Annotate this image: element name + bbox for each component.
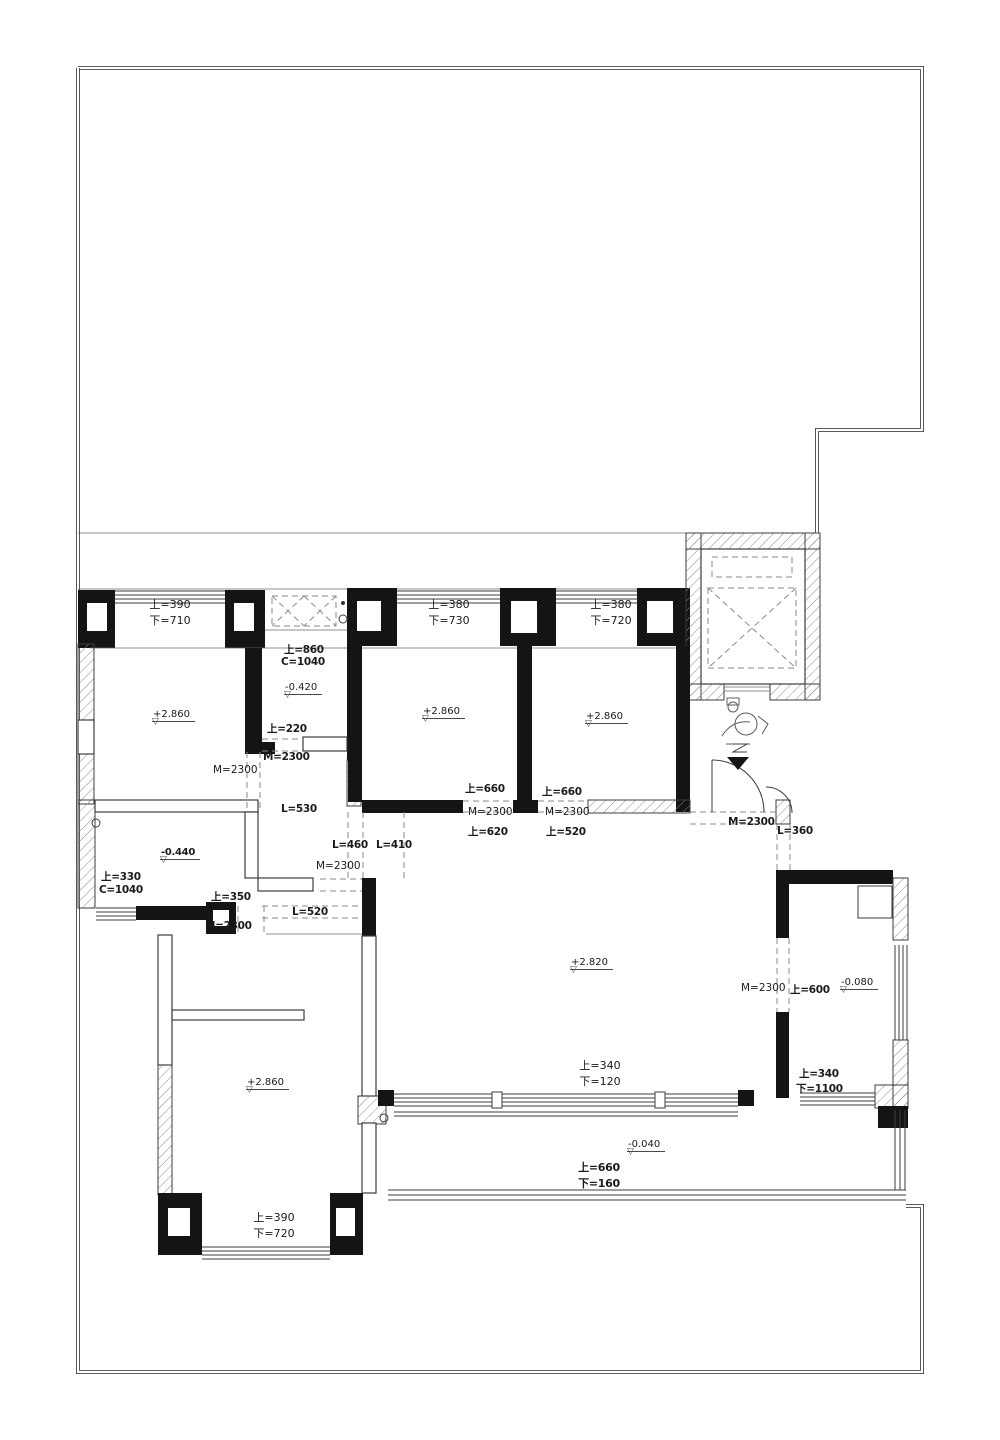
terrace-boundary xyxy=(78,68,922,1372)
plan-drawing xyxy=(0,0,1000,1440)
window-label-top-right: 上=380 下=720 xyxy=(569,597,653,629)
dim-bath1-u220: 上=220 xyxy=(267,721,307,736)
window-label-top-mid: 上=380 下=730 xyxy=(407,597,491,629)
dim-hall-l520: L=520 xyxy=(292,906,328,918)
dim-entry-l360: L=360 xyxy=(777,825,813,837)
level-marker-bed2: +2.860 xyxy=(422,706,465,719)
dim-bath2-sill: 上=330 xyxy=(101,869,141,884)
dim-bath2-window: C=1040 xyxy=(99,884,143,896)
level-marker-bath1: -0.420 xyxy=(284,682,322,695)
dim-kitchen-u340: 上=340 xyxy=(799,1066,839,1081)
dim-kitchen-d1100: 下=1100 xyxy=(796,1081,843,1096)
balcony-rail-label: 上=660 下=160 xyxy=(557,1160,641,1192)
dim-bed3-upper: 上=660 xyxy=(542,784,582,799)
flue-shaft xyxy=(265,596,347,630)
dim-bed2-door: M=2300 xyxy=(468,806,513,818)
level-marker-living: +2.820 xyxy=(570,957,613,970)
dim-bed3-door: M=2300 xyxy=(545,806,590,818)
level-marker-bed3: +2.860 xyxy=(585,711,628,724)
elevator-shaft xyxy=(686,533,820,700)
dim-entry-door: M=2300 xyxy=(728,816,775,828)
level-marker-bed4: +2.860 xyxy=(246,1077,289,1090)
walls xyxy=(78,644,908,1255)
dim-kitchen-u600: 上=600 xyxy=(790,982,830,997)
dim-hall-l530: L=530 xyxy=(281,803,317,815)
level-marker-bath2: -0.440 xyxy=(160,847,200,860)
entrance-arrow-icon xyxy=(727,744,749,770)
dim-bath2-u350: 上=350 xyxy=(211,889,251,904)
dim-bath1-sill: 上=860 xyxy=(284,642,324,657)
dim-bed1-door: M=2300 xyxy=(213,764,258,776)
dim-bed2-lower: 上=620 xyxy=(468,824,508,839)
dim-bath1-window: C=1040 xyxy=(281,656,325,668)
floor-plan: 上=390 下=710 上=380 下=730 上=380 下=720 上=39… xyxy=(0,0,1000,1440)
dim-hall-l410: L=410 xyxy=(376,839,412,851)
dim-bath1-door: M=2300 xyxy=(263,751,310,763)
window-label-bottom-left: 上=390 下=720 xyxy=(232,1210,316,1242)
dim-bed3-lower: 上=520 xyxy=(546,824,586,839)
person-figure-symbol xyxy=(722,698,768,744)
dashed-openings xyxy=(238,739,790,1012)
dim-bed2-upper: 上=660 xyxy=(465,781,505,796)
level-marker-balcony: -0.040 xyxy=(627,1139,665,1152)
dim-hall-l460: L=460 xyxy=(332,839,368,851)
window-label-living-south: 上=340 下=120 xyxy=(558,1058,642,1090)
dim-bath2-door: M=2300 xyxy=(205,920,252,932)
dim-kitchen-door: M=2300 xyxy=(741,982,786,994)
level-marker-bed1: +2.860 xyxy=(152,709,195,722)
window-label-top-left: 上=390 下=710 xyxy=(128,597,212,629)
level-marker-kitchen: -0.080 xyxy=(840,977,878,990)
dim-hall-door: M=2300 xyxy=(316,860,361,872)
